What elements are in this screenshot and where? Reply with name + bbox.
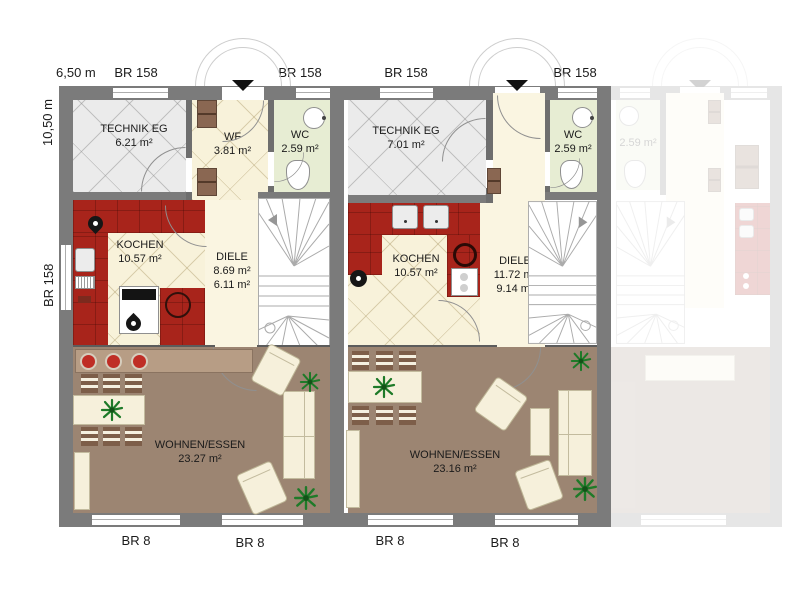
sofa bbox=[283, 391, 315, 479]
interior-wall bbox=[348, 345, 497, 347]
dining-chair bbox=[125, 374, 142, 393]
dim-label-height: 10,50 m bbox=[40, 86, 55, 146]
kitchen-sink-icon bbox=[392, 205, 418, 229]
door-arc bbox=[141, 147, 186, 192]
entry-direction-icon bbox=[506, 80, 528, 91]
staircase bbox=[258, 198, 330, 347]
deco-bowl bbox=[80, 353, 97, 370]
sideboard bbox=[75, 349, 253, 373]
interior-wall bbox=[73, 345, 215, 347]
party-wall-1 bbox=[330, 86, 344, 527]
faucet-icon bbox=[590, 116, 594, 120]
entry-direction-icon bbox=[232, 80, 254, 91]
staircase bbox=[616, 198, 685, 347]
sink-icon bbox=[619, 106, 639, 126]
sofa bbox=[558, 390, 592, 476]
sideboard bbox=[645, 355, 735, 381]
dining-chair bbox=[376, 406, 393, 425]
window bbox=[380, 88, 433, 98]
window bbox=[113, 88, 168, 98]
kitchen-sink-icon bbox=[739, 208, 754, 221]
kitchen-sink-icon bbox=[423, 205, 449, 229]
deco-bowl bbox=[105, 353, 122, 370]
window-label-bottom-1: BR 8 bbox=[111, 533, 161, 548]
shelf bbox=[346, 430, 360, 508]
coffee-table bbox=[530, 408, 550, 456]
plant-icon bbox=[92, 398, 132, 422]
door-arc bbox=[274, 152, 304, 182]
dining-chair bbox=[103, 427, 120, 446]
plant-icon bbox=[572, 476, 598, 502]
cabinet bbox=[708, 100, 721, 124]
cabinet bbox=[708, 168, 721, 192]
dim-label-width: 6,50 m bbox=[56, 65, 96, 80]
window bbox=[222, 515, 303, 525]
room-label: WOHNEN/ESSEN 23.27 m² bbox=[130, 438, 270, 466]
plant-icon bbox=[293, 485, 319, 511]
window-label-left: BR 158 bbox=[41, 251, 56, 307]
kitchen-sink-icon bbox=[75, 248, 95, 272]
dining-chair bbox=[399, 351, 416, 370]
interior-wall bbox=[545, 345, 597, 347]
faucet-icon bbox=[404, 220, 407, 223]
room-label: TECHNIK EG 6.21 m² bbox=[88, 122, 180, 150]
dining-chair bbox=[376, 351, 393, 370]
cabinet bbox=[197, 168, 217, 196]
kitchen-sink-icon bbox=[739, 225, 754, 238]
room-label: DIELE 8.69 m² 6.11 m² bbox=[200, 250, 264, 292]
door-arc bbox=[165, 205, 207, 247]
faucet-icon bbox=[435, 220, 438, 223]
faucet-icon bbox=[322, 116, 326, 120]
window-label-top-3: BR 158 bbox=[381, 65, 431, 80]
room-label: 2.59 m² bbox=[611, 136, 665, 150]
cabinet bbox=[735, 145, 759, 189]
entry-arc-unit1 bbox=[195, 38, 291, 86]
window-label-bottom-2: BR 8 bbox=[225, 535, 275, 550]
door-arc bbox=[497, 95, 541, 139]
dining-chair bbox=[81, 374, 98, 393]
window bbox=[61, 245, 71, 310]
door-arc bbox=[442, 118, 486, 162]
dining-chair bbox=[352, 406, 369, 425]
room-label: WC 2.59 m² bbox=[546, 128, 600, 156]
window bbox=[558, 88, 597, 98]
interior-wall bbox=[73, 192, 186, 200]
interior-wall bbox=[486, 100, 493, 160]
door-arc bbox=[438, 300, 480, 342]
interior-wall bbox=[348, 195, 486, 203]
unit-3-ghost: 2.59 m² bbox=[611, 38, 800, 548]
cabinet bbox=[487, 168, 501, 194]
entry-arc-unit2 bbox=[469, 38, 565, 86]
entry-arc-unit3 bbox=[652, 38, 748, 86]
dining-chair bbox=[399, 406, 416, 425]
shelf bbox=[74, 452, 90, 510]
radiator-icon bbox=[75, 276, 95, 289]
knob-icon bbox=[743, 273, 749, 279]
window bbox=[641, 515, 726, 525]
window bbox=[620, 88, 650, 98]
staircase bbox=[528, 198, 597, 347]
bar-stool-icon bbox=[350, 270, 367, 287]
plant-icon bbox=[570, 350, 592, 372]
cooktop-icon bbox=[453, 243, 477, 267]
dining-chair bbox=[81, 427, 98, 446]
plant-icon bbox=[364, 375, 404, 399]
dining-chair bbox=[103, 374, 120, 393]
wall-right bbox=[770, 86, 782, 527]
door-arc bbox=[550, 158, 580, 188]
floor-plan: 6,50 m 10,50 m BR 158 BR 158 BR 158 BR 1… bbox=[0, 0, 800, 600]
room-label: WOHNEN/ESSEN 23.16 m² bbox=[385, 448, 525, 476]
plant-icon bbox=[299, 371, 321, 393]
kitchen-counter bbox=[348, 235, 382, 275]
window bbox=[368, 515, 453, 525]
window-label-top-1: BR 158 bbox=[111, 65, 161, 80]
door-arc bbox=[222, 100, 264, 142]
window bbox=[731, 88, 767, 98]
kitchen-cart bbox=[451, 268, 478, 296]
window bbox=[495, 515, 578, 525]
window-label-bottom-4: BR 8 bbox=[480, 535, 530, 550]
cooktop-icon bbox=[165, 292, 191, 318]
window-label-bottom-3: BR 8 bbox=[365, 533, 415, 548]
kitchen-drawer bbox=[78, 296, 91, 303]
room-label: KOCHEN 10.57 m² bbox=[378, 252, 454, 280]
deco-bowl bbox=[131, 353, 148, 370]
knob-icon bbox=[743, 283, 749, 289]
cabinet bbox=[197, 100, 217, 128]
dining-chair bbox=[352, 351, 369, 370]
room-label: TECHNIK EG 7.01 m² bbox=[360, 124, 452, 152]
window bbox=[92, 515, 180, 525]
window bbox=[296, 88, 330, 98]
